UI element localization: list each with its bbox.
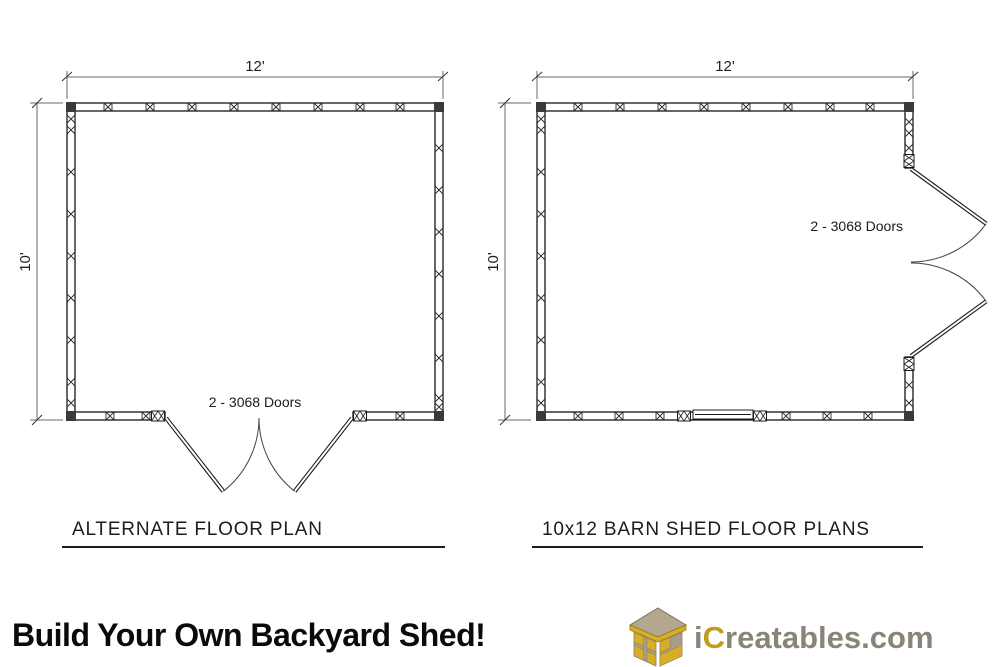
double-door-swing-left xyxy=(166,418,352,491)
walls-right xyxy=(537,103,913,420)
brand-accent-letter: C xyxy=(703,620,725,655)
dim-width-label-left: 12' xyxy=(245,58,265,75)
stud-marks-right xyxy=(537,103,914,421)
wall-corners-left xyxy=(66,102,444,421)
window-right-plan xyxy=(693,410,753,419)
brand-wordmark: iCreatables.com xyxy=(694,620,934,656)
floor-plan-right: 12' 10' xyxy=(485,58,986,425)
dim-width-label-right: 12' xyxy=(715,58,735,75)
dim-height-label-left: 10' xyxy=(17,252,34,272)
brand-rest: reatables.com xyxy=(725,620,934,655)
caption-alternate-floor-plan: ALTERNATE FLOOR PLAN xyxy=(62,519,445,548)
caption-barn-shed-floor-plans: 10x12 BARN SHED FLOOR PLANS xyxy=(532,519,923,548)
brand-prefix: i xyxy=(694,620,703,655)
stud-marks-left xyxy=(67,103,443,421)
floor-plan-left: 12' 10' xyxy=(17,58,448,491)
dim-height-left xyxy=(30,98,63,425)
floor-plan-drawing: 12' 10' xyxy=(0,0,1000,600)
isometric-shed-icon xyxy=(626,606,690,667)
dim-width-left xyxy=(62,71,448,99)
shed-floor-plan-sheet: 12' 10' xyxy=(0,0,1000,667)
double-door-swing-right xyxy=(911,169,986,356)
banner-headline: Build Your Own Backyard Shed! xyxy=(12,617,485,654)
wall-corners-right xyxy=(536,102,914,421)
walls-left xyxy=(67,103,443,420)
dim-height-right xyxy=(498,98,531,425)
dim-width-right xyxy=(532,71,918,99)
door-label-right: 2 - 3068 Doors xyxy=(810,218,903,234)
door-label-left: 2 - 3068 Doors xyxy=(209,394,302,410)
dim-height-label-right: 10' xyxy=(485,252,502,272)
